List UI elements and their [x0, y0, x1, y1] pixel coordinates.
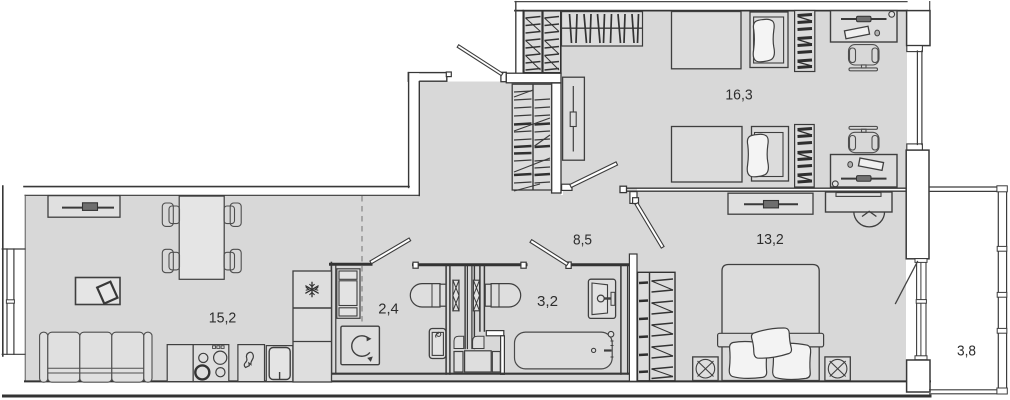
svg-text:3,2: 3,2 — [537, 293, 558, 310]
svg-text:15,2: 15,2 — [209, 310, 237, 327]
svg-text:2,4: 2,4 — [378, 301, 399, 318]
svg-text:13,2: 13,2 — [756, 231, 784, 248]
svg-text:8,5: 8,5 — [573, 232, 592, 249]
svg-text:3,8: 3,8 — [957, 343, 976, 360]
svg-text:16,3: 16,3 — [725, 86, 752, 103]
